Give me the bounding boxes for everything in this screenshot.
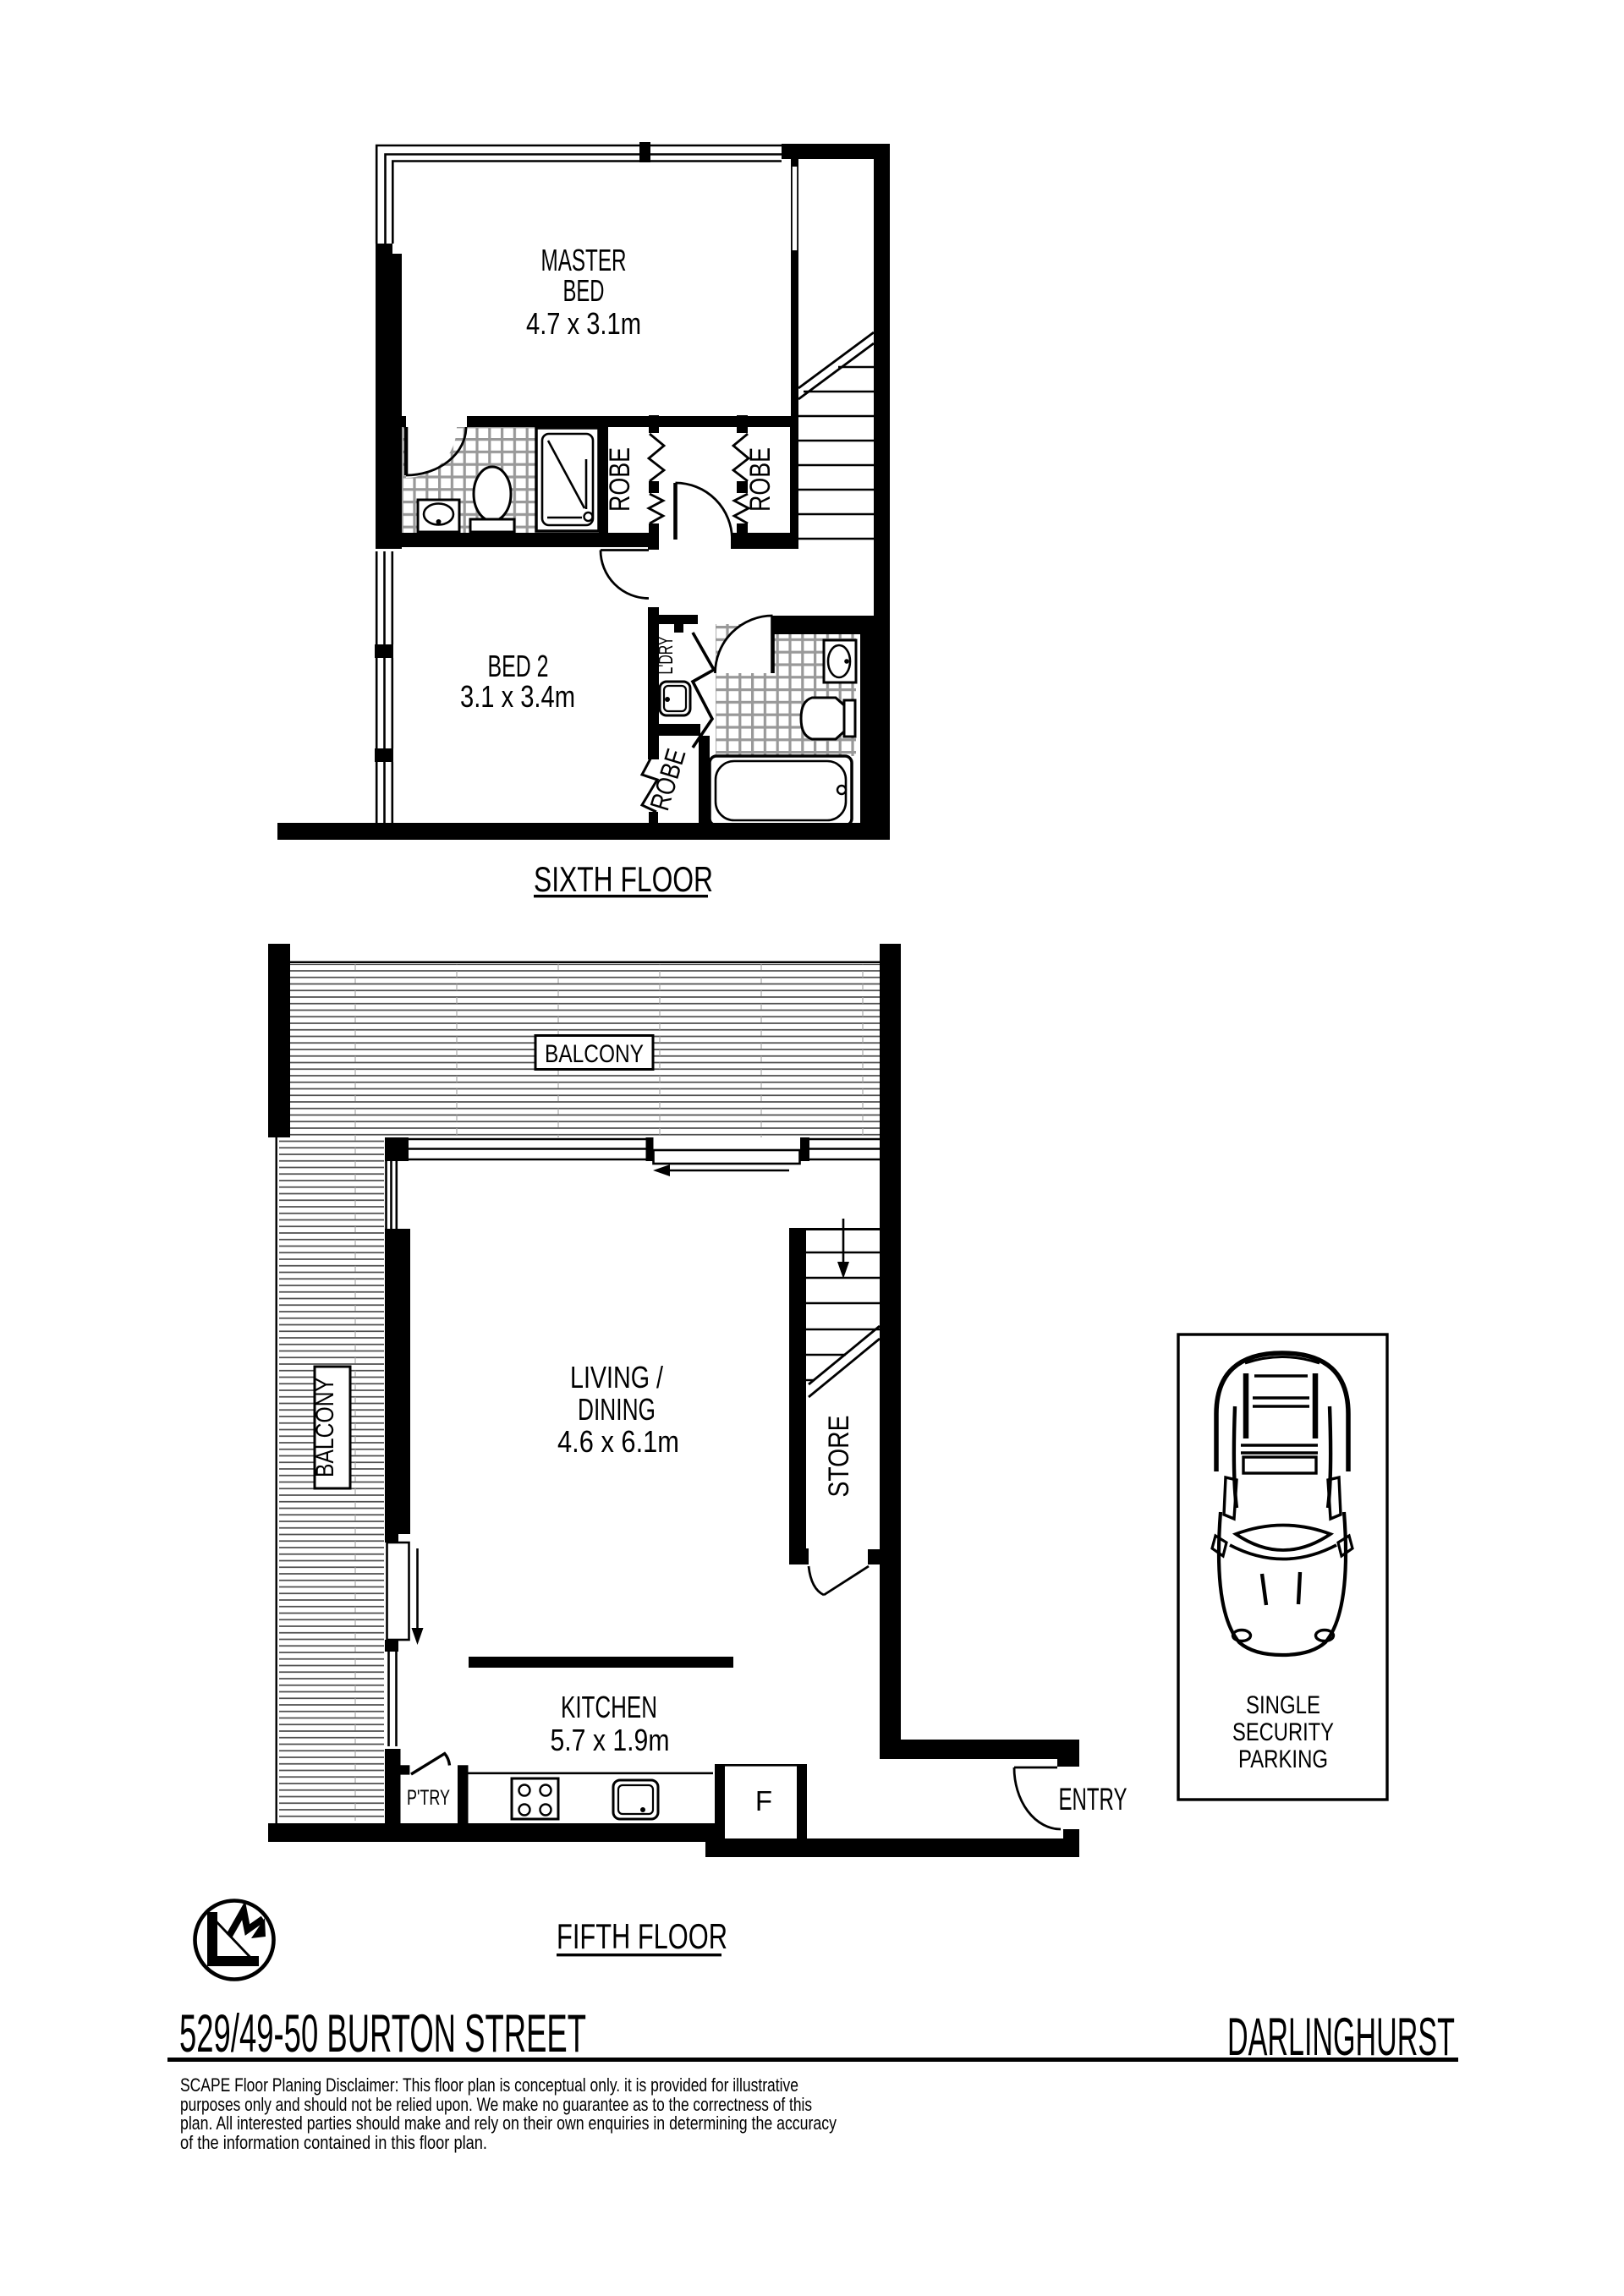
svg-text:P'TRY: P'TRY	[407, 1786, 450, 1810]
svg-text:3.1 x 3.4m: 3.1 x 3.4m	[460, 679, 575, 714]
svg-text:PARKING: PARKING	[1238, 1745, 1328, 1773]
svg-text:MASTER: MASTER	[541, 243, 627, 277]
svg-text:4.6 x 6.1m: 4.6 x 6.1m	[557, 1424, 679, 1459]
svg-text:529/49-50 BURTON STREET: 529/49-50 BURTON STREET	[179, 2004, 586, 2063]
svg-text:4.7 x 3.1m: 4.7 x 3.1m	[526, 306, 641, 341]
svg-text:L'DRY: L'DRY	[655, 637, 678, 675]
svg-text:SINGLE: SINGLE	[1246, 1691, 1320, 1719]
svg-text:DINING: DINING	[578, 1392, 656, 1427]
svg-text:BALCONY: BALCONY	[311, 1378, 339, 1477]
svg-text:BALCONY: BALCONY	[545, 1040, 644, 1068]
svg-text:5.7 x 1.9m: 5.7 x 1.9m	[551, 1723, 670, 1757]
svg-text:BED 2: BED 2	[488, 649, 549, 683]
svg-text:ROBE: ROBE	[604, 447, 636, 512]
svg-text:ROBE: ROBE	[744, 447, 776, 512]
svg-text:KITCHEN: KITCHEN	[561, 1690, 657, 1724]
svg-text:SCAPE Floor Planing Disclaimer: SCAPE Floor Planing Disclaimer: This flo…	[180, 2074, 798, 2096]
svg-text:FIFTH FLOOR: FIFTH FLOOR	[557, 1916, 727, 1956]
svg-text:SIXTH FLOOR: SIXTH FLOOR	[534, 859, 713, 899]
svg-text:F: F	[755, 1785, 772, 1817]
svg-text:STORE: STORE	[823, 1416, 855, 1498]
svg-text:plan. All interested parties s: plan. All interested parties should make…	[180, 2112, 837, 2134]
svg-text:BED: BED	[563, 273, 605, 308]
svg-text:SECURITY: SECURITY	[1232, 1718, 1334, 1746]
svg-text:ENTRY: ENTRY	[1059, 1782, 1127, 1817]
svg-text:LIVING /: LIVING /	[570, 1360, 663, 1395]
svg-text:of the information contained i: of the information contained in this flo…	[180, 2132, 487, 2153]
